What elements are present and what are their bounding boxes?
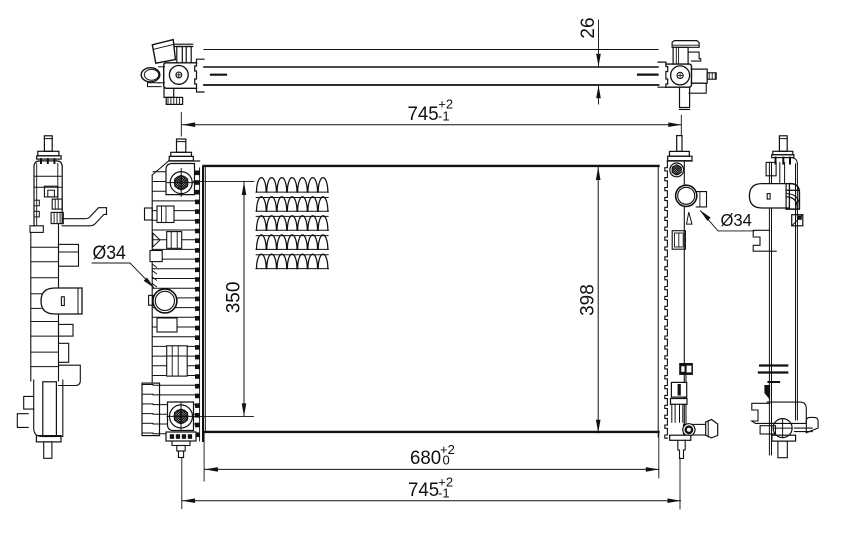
svg-text:-1: -1 [438, 108, 450, 123]
svg-text:350: 350 [224, 282, 245, 314]
svg-text:Ø34: Ø34 [721, 210, 752, 229]
svg-text:0: 0 [443, 452, 450, 467]
svg-text:-1: -1 [438, 485, 450, 500]
svg-text:398: 398 [578, 284, 599, 316]
svg-text:26: 26 [578, 17, 599, 38]
svg-text:745: 745 [408, 479, 439, 500]
svg-text:680: 680 [410, 447, 441, 468]
svg-text:745: 745 [408, 103, 439, 124]
svg-text:Ø34: Ø34 [93, 241, 126, 263]
